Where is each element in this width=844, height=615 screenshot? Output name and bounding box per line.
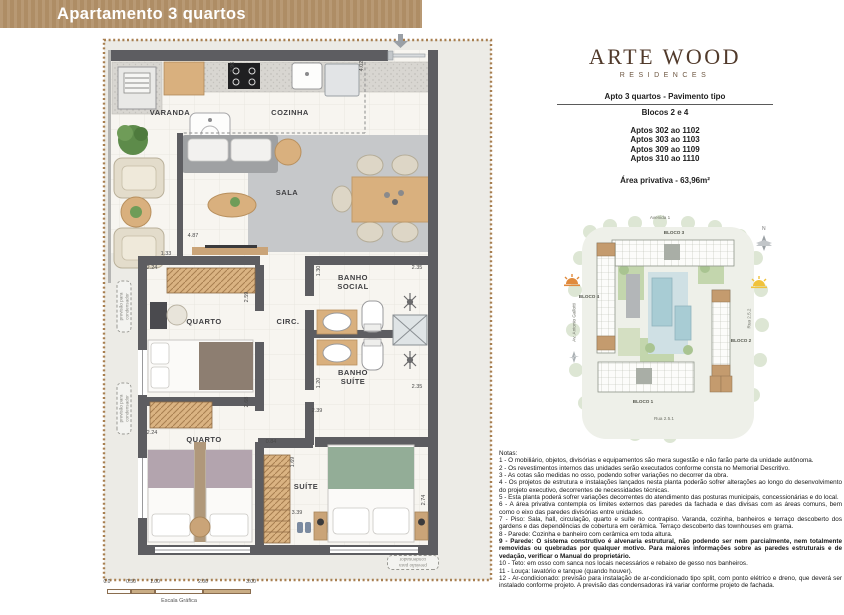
kitchen-sink-icon: [292, 63, 322, 89]
condenser-note: previsão para condensador: [117, 281, 132, 333]
varanda-railing: [108, 50, 111, 283]
note-item: 5 - Esta planta poderá sofrer variações …: [499, 494, 842, 501]
scale-tick: 0.0: [97, 579, 117, 585]
dim-banho-suite-w: 1.20: [316, 372, 322, 394]
scale-tick: 2.00: [193, 579, 213, 585]
dim-quarto2-w: 2.24: [141, 430, 163, 436]
dim-banho-suite-h: 2.35: [406, 384, 428, 390]
private-area-line: Área privativa - 63,96m²: [545, 176, 785, 185]
washing-machine-icon: [118, 67, 156, 109]
apartment-range: Aptos 309 ao 1109: [545, 145, 785, 154]
wardrobe-quarto1: [167, 268, 255, 293]
unit-type-line: Apto 3 quartos - Pavimento tipo: [545, 92, 785, 101]
note-item: 2 - Os revestimentos internos das unidad…: [499, 465, 842, 472]
note-item: 7 - Piso: Sala, hall, circulação, quarto…: [499, 516, 842, 531]
dim-quarto1-h: 2.59: [244, 286, 250, 308]
apartment-range: Aptos 303 ao 1103: [545, 135, 785, 144]
scale-bar: [107, 589, 131, 594]
scale-tick: 0.50: [121, 579, 141, 585]
compass-icon-small: [569, 351, 579, 363]
fridge-icon: [325, 64, 359, 96]
scale-tick: 3.00: [241, 579, 261, 585]
north-label: N: [762, 226, 766, 232]
scale-tick: 1.00: [145, 579, 165, 585]
room-label-banho-suite: BANHO SUÍTE: [329, 369, 377, 386]
dim-quarto1-w: 2.24: [141, 265, 163, 271]
block-label-2: BLOCO 2: [721, 338, 761, 343]
note-item: 11 - Louça: lavatório e tanque (quando h…: [499, 568, 842, 575]
dim-varanda-top: 3.96: [230, 56, 236, 78]
scale-bar: [155, 589, 203, 594]
condenser-note: previsão para condensador: [387, 555, 439, 570]
note-item: 4 - Os projetos de estrutura e instalaçõ…: [499, 479, 842, 494]
note-item: 10 - Teto: em osso com sanca nos locais …: [499, 560, 842, 567]
street-label-right: Rua 2.5.2: [747, 299, 752, 339]
brand-logo: ARTE WOOD: [545, 44, 785, 70]
quarto2-furniture: [148, 442, 252, 542]
suite-bed: [314, 445, 428, 542]
brochure-page: { "header": { "title": "Apartamento 3 qu…: [0, 0, 844, 613]
dim-banho-social-w: 1.30: [316, 260, 322, 282]
street-label-bottom: Rua 2.5.1: [644, 416, 684, 421]
scale-caption: Escala Gráfica: [134, 598, 224, 604]
compass-icon: [756, 235, 772, 251]
dim-banho-social-h: 2.35: [406, 265, 428, 271]
room-label-circ: CIRC.: [258, 318, 318, 327]
dim-cozinha-top: 4.02: [359, 55, 365, 77]
room-label-suite: SUÍTE: [276, 483, 336, 492]
street-label-top: Avenida 1: [640, 215, 680, 220]
dim-suite-h: 2.74: [421, 489, 427, 511]
room-label-varanda: VARANDA: [140, 109, 200, 118]
unit-info: Apto 3 quartos - Pavimento tipo Blocos 2…: [545, 92, 785, 185]
divider-line: [557, 104, 773, 105]
coffee-table: [208, 193, 256, 217]
block-label-1: BLOCO 1: [623, 399, 663, 404]
kitchen-cabinet: [164, 62, 204, 95]
note-item-structural: 9 - Parede: O sistema construtivo é alve…: [499, 538, 842, 560]
unit-blocks-line: Blocos 2 e 4: [545, 108, 785, 117]
dim-suite-w: 3.39: [286, 510, 308, 516]
room-label-quarto1: QUARTO: [174, 318, 234, 327]
brand-tagline: RESIDENCES: [545, 72, 785, 79]
dim-hall-w: 0.84: [260, 439, 282, 445]
room-label-sala: SALA: [257, 189, 317, 198]
condenser-note: previsão para condensador: [117, 383, 132, 435]
notes-title: Notas:: [499, 450, 842, 457]
note-item: 12 - Ar-condicionado: previsão para inst…: [499, 575, 842, 590]
block-label-4: BLOCO 4: [569, 294, 609, 299]
room-label-cozinha: COZINHA: [260, 109, 320, 118]
room-label-banho-social: BANHO SOCIAL: [329, 274, 377, 291]
unit-apartments: Aptos 302 ao 1102 Aptos 303 ao 1103 Apto…: [545, 126, 785, 164]
notes-section: Notas: 1 - O mobiliário, objetos, divisó…: [499, 450, 842, 590]
dim-varanda-w: 1.33: [155, 251, 177, 257]
sofa: [182, 135, 278, 173]
scale-bar: [131, 589, 155, 594]
dim-closet-w: 1.69: [290, 451, 296, 473]
dim-sala-w: 4.87: [182, 233, 204, 239]
block-label-3: BLOCO 3: [654, 230, 694, 235]
floorplan: VARANDA COZINHA SALA QUARTO CIRC. BANHO …: [95, 30, 495, 613]
dim-suite-hall: 2.39: [306, 408, 328, 414]
note-item: 6 - A área privativa contempla os limite…: [499, 501, 842, 516]
note-item: 1 - O mobiliário, objetos, divisórias e …: [499, 457, 842, 464]
apartment-range: Aptos 302 ao 1102: [545, 126, 785, 135]
street-label-left: Av. Antonio Gallotti: [572, 303, 577, 343]
room-label-quarto2: QUARTO: [174, 436, 234, 445]
wardrobe-quarto2: [150, 402, 212, 428]
apartment-range: Aptos 310 ao 1110: [545, 154, 785, 163]
side-table: [275, 139, 301, 165]
siteplan: Avenida 1 BLOCO 3 BLOCO 4 BLOCO 2 BLOCO …: [560, 210, 780, 455]
scale-bar: [203, 589, 251, 594]
page-title: Apartamento 3 quartos: [0, 5, 246, 24]
note-item: 3 - As cotas são medidas no osso, podend…: [499, 472, 842, 479]
dim-quarto2-h: 2.68: [244, 391, 250, 413]
page-header: Apartamento 3 quartos: [0, 0, 422, 28]
note-item: 8 - Parede: Cozinha e banheiro com cerâm…: [499, 531, 842, 538]
